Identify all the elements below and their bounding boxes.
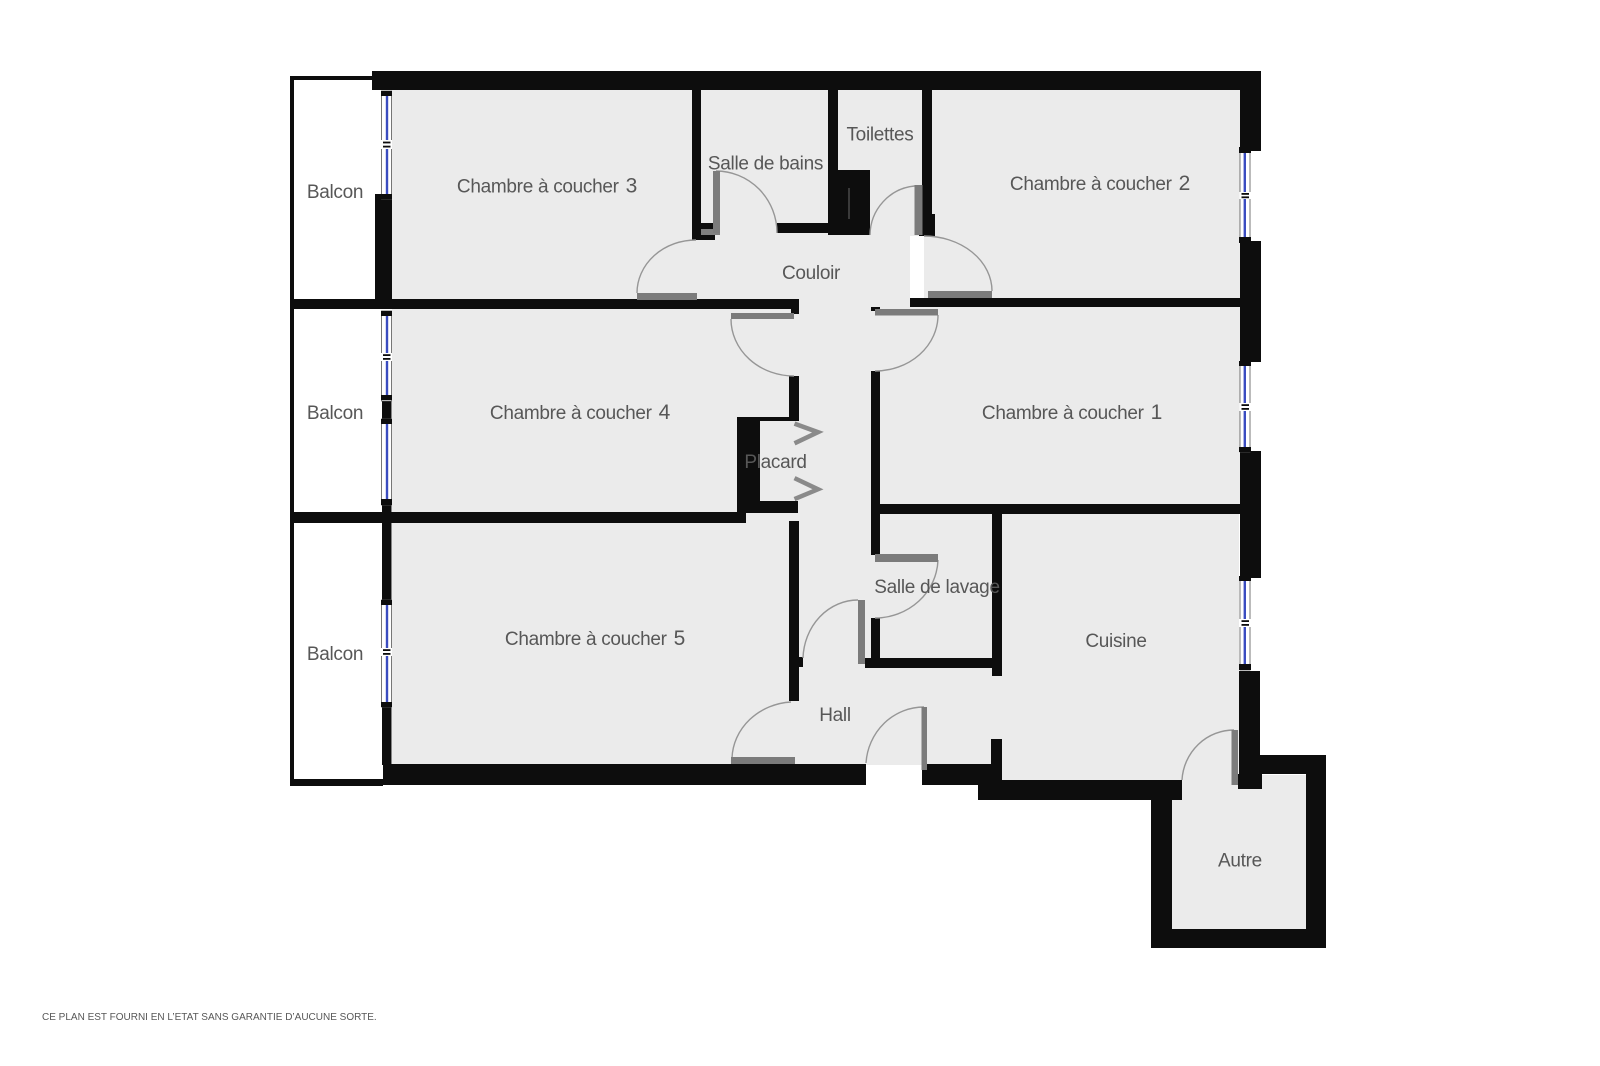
svg-text:Salle de lavage: Salle de lavage — [874, 577, 999, 598]
svg-text:Couloir: Couloir — [782, 263, 841, 284]
svg-text:Balcon: Balcon — [307, 644, 363, 665]
svg-text:Toilettes: Toilettes — [846, 125, 913, 146]
svg-text:CE PLAN EST FOURNI EN L’ETAT S: CE PLAN EST FOURNI EN L’ETAT SANS GARANT… — [42, 1012, 377, 1023]
svg-text:Chambre à coucher 2: Chambre à coucher 2 — [1010, 172, 1190, 195]
svg-text:Chambre à coucher 3: Chambre à coucher 3 — [457, 175, 637, 198]
svg-text:Balcon: Balcon — [307, 182, 363, 203]
svg-text:Balcon: Balcon — [307, 403, 363, 424]
svg-text:Hall: Hall — [819, 705, 851, 726]
svg-text:Placard: Placard — [744, 452, 806, 473]
svg-text:Chambre à coucher 1: Chambre à coucher 1 — [982, 401, 1162, 424]
svg-text:Autre: Autre — [1218, 851, 1262, 872]
svg-text:Chambre à coucher 4: Chambre à coucher 4 — [490, 401, 671, 424]
svg-text:Chambre à coucher 5: Chambre à coucher 5 — [505, 627, 685, 650]
svg-text:Salle de bains: Salle de bains — [708, 154, 823, 175]
svg-text:Cuisine: Cuisine — [1085, 631, 1146, 652]
